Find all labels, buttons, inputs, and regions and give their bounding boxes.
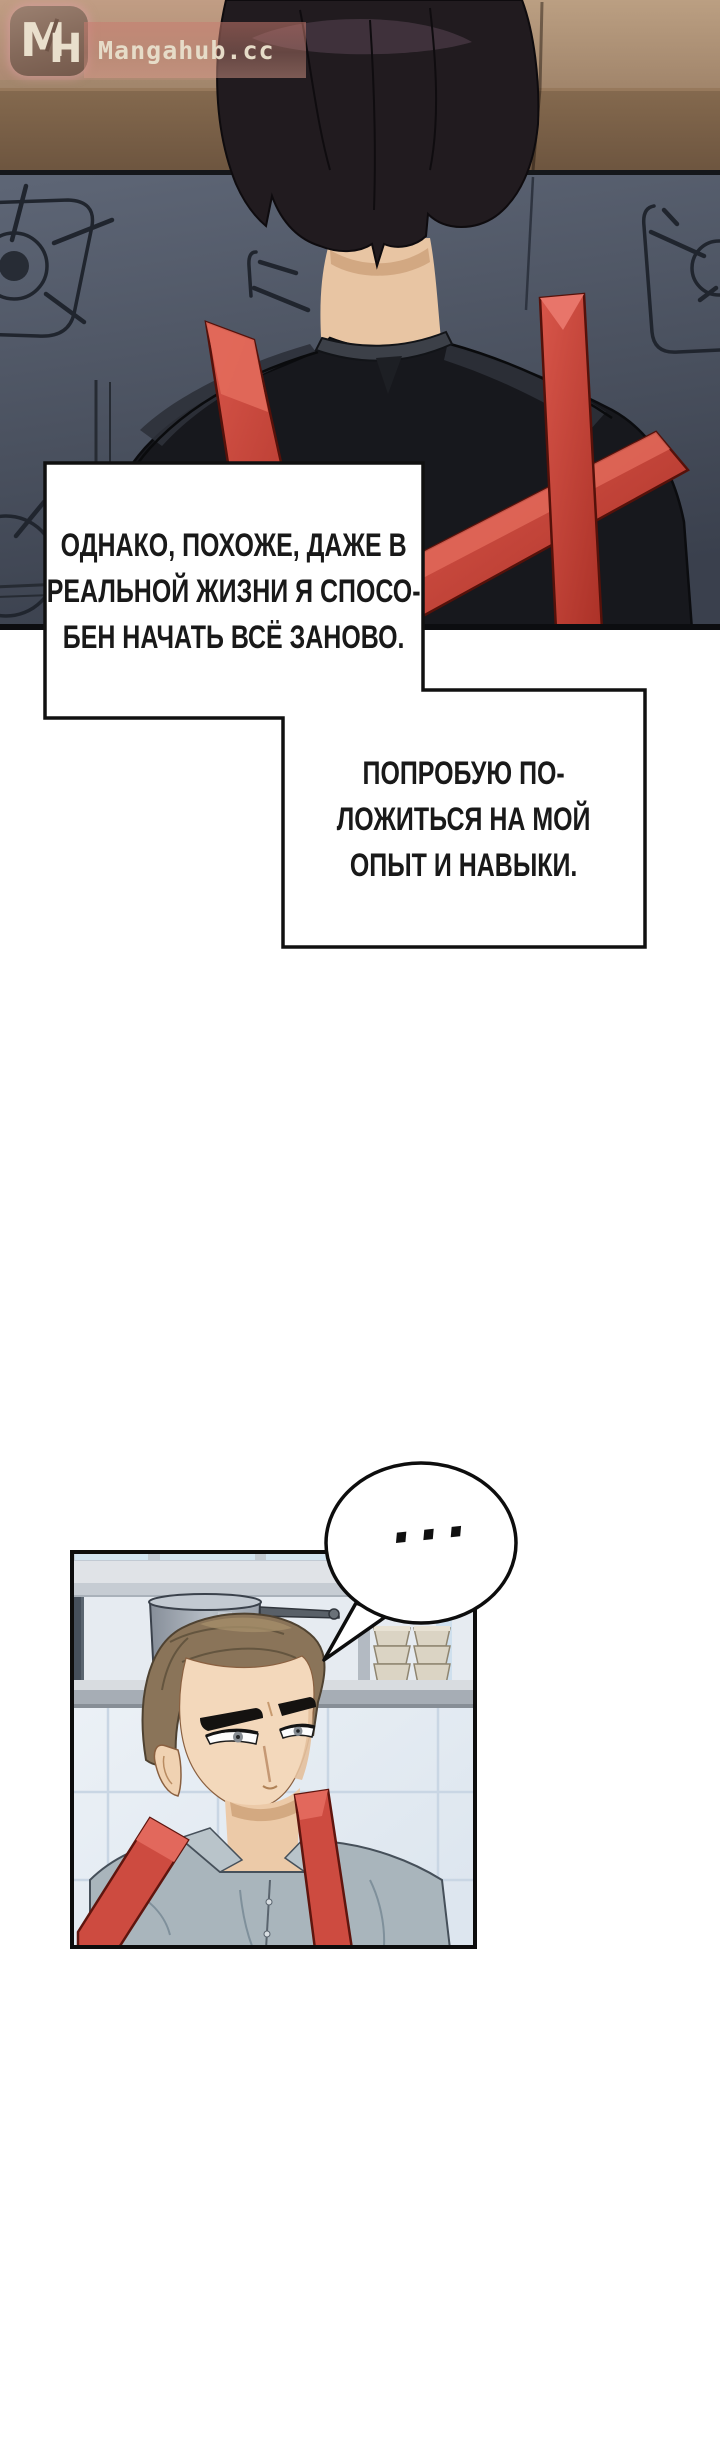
ellipsis-speech-bubble [316,1455,528,1670]
comic-page[interactable]: M H Mangahub.cc ОДНАКО, ПОХОЖЕ, ДАЖЕ В Р… [0,0,720,2448]
speech-bubble-1-text: ОДНАКО, ПОХОЖЕ, ДАЖЕ В РЕАЛЬНОЙ ЖИЗНИ Я … [47,522,421,660]
site-watermark: Mangahub.cc [84,22,306,78]
speech-bubble-1: ОДНАКО, ПОХОЖЕ, ДАЖЕ В РЕАЛЬНОЙ ЖИЗНИ Я … [45,463,423,718]
site-name-text: Mangahub.cc [98,36,275,65]
speech-bubble-2-text: ПОПРОБУЮ ПО- ЛОЖИТЬСЯ НА МОЙ ОПЫТ И НАВЫ… [337,750,591,888]
mangahub-logo-icon: M H [10,6,88,76]
logo-letter-h: H [49,26,82,72]
ellipsis-text: ... [380,1491,485,1557]
speech-bubble-2: ПОПРОБУЮ ПО- ЛОЖИТЬСЯ НА МОЙ ОПЫТ И НАВЫ… [283,690,645,947]
